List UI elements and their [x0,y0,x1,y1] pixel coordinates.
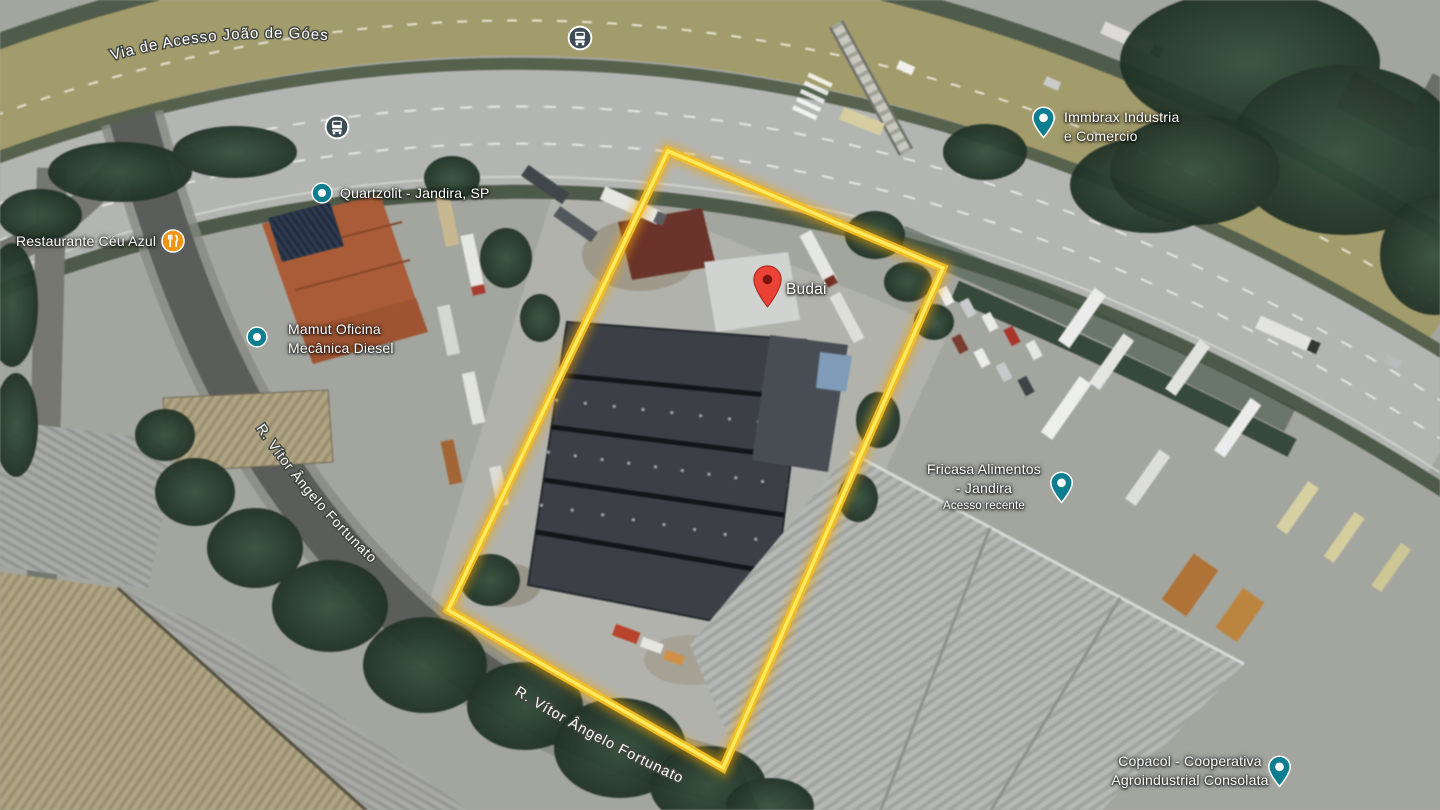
restaurant-icon[interactable] [161,229,185,258]
bus-stop-icon[interactable] [324,114,350,145]
poi-label-text: Copacol - Cooperativa [1086,752,1294,771]
street-label-vitor-upper: R. Vítor Ângelo Fortunato [253,421,380,566]
place-label-budai[interactable]: Budai [786,280,827,299]
map-canvas[interactable]: Via de Acesso João de Góes R. Vítor Ânge… [0,0,1440,810]
poi-label-text: e Comercio [1064,127,1179,146]
place-pin-icon[interactable] [752,264,783,314]
poi-label-text: Budai [786,281,827,298]
poi-label-text: Quartzolit - Jandira, SP [340,185,490,201]
bus-stop-icon[interactable] [567,25,593,56]
poi-label-text: Fricasa Alimentos [904,460,1064,479]
poi-label-copacol[interactable]: Copacol - Cooperativa Agroindustrial Con… [1086,752,1294,790]
poi-label-immbrax[interactable]: Immbrax Industria e Comercio [1064,108,1179,146]
poi-label-text: Mamut Oficina [288,320,394,339]
poi-label-quartzolit[interactable]: Quartzolit - Jandira, SP [340,184,490,203]
poi-label-restaurante[interactable]: Restaurante Céu Azul [16,232,156,251]
poi-pin-icon[interactable] [1031,106,1056,144]
road-label-via-de-acesso: Via de Acesso João de Góes [109,25,330,64]
poi-label-text: Mecânica Diesel [288,339,394,358]
poi-label-text: - Jandira [904,479,1064,498]
poi-dot-icon[interactable] [246,326,268,353]
poi-recent-access-note: Acesso recente [904,499,1064,513]
poi-label-text: Immbrax Industria [1064,108,1179,127]
poi-label-fricasa[interactable]: Fricasa Alimentos - Jandira Acesso recen… [904,460,1064,513]
poi-label-text: Agroindustrial Consolata [1086,771,1294,790]
poi-label-text: Restaurante Céu Azul [16,233,156,249]
poi-dot-icon[interactable] [311,182,333,209]
poi-label-mamut[interactable]: Mamut Oficina Mecânica Diesel [288,320,394,358]
property-boundary [448,151,943,768]
map-overlay: Via de Acesso João de Góes R. Vítor Ânge… [0,0,1440,810]
